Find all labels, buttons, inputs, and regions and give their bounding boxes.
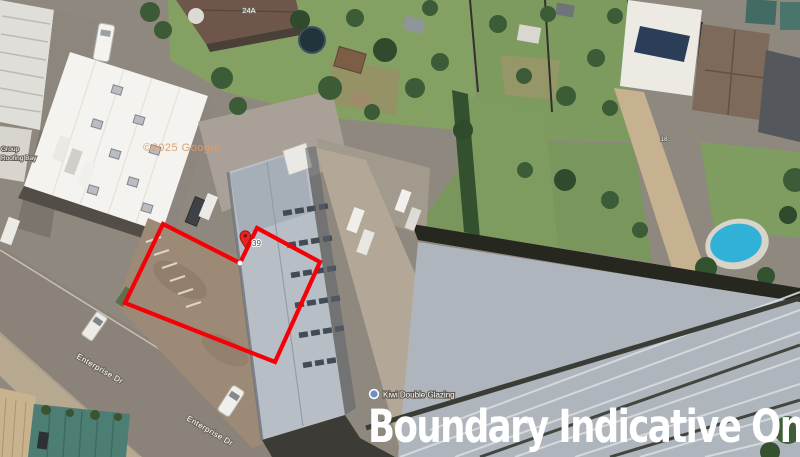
house-number-18: 18 (660, 136, 668, 143)
house-number-24a: 24A (242, 6, 255, 15)
pin-center-dot (244, 234, 248, 238)
round-pool (299, 27, 325, 53)
aerial-imagery: ©2025 Google Group Roofing Bay 24A 18 En… (0, 0, 800, 457)
roof-business-label-line1: Group (1, 146, 19, 153)
watermark-text: ©2025 Google (143, 142, 220, 154)
boundary-vertex-dot (238, 261, 243, 266)
poi-dot-icon (370, 390, 377, 397)
satellite-map-image[interactable]: ©2025 Google Group Roofing Bay 24A 18 En… (0, 0, 800, 457)
poi-label: Kiwi Double Glazing (383, 391, 455, 400)
roof-business-label-line2: Roofing Bay (1, 155, 37, 162)
pin-number-label: 39 (252, 239, 261, 248)
